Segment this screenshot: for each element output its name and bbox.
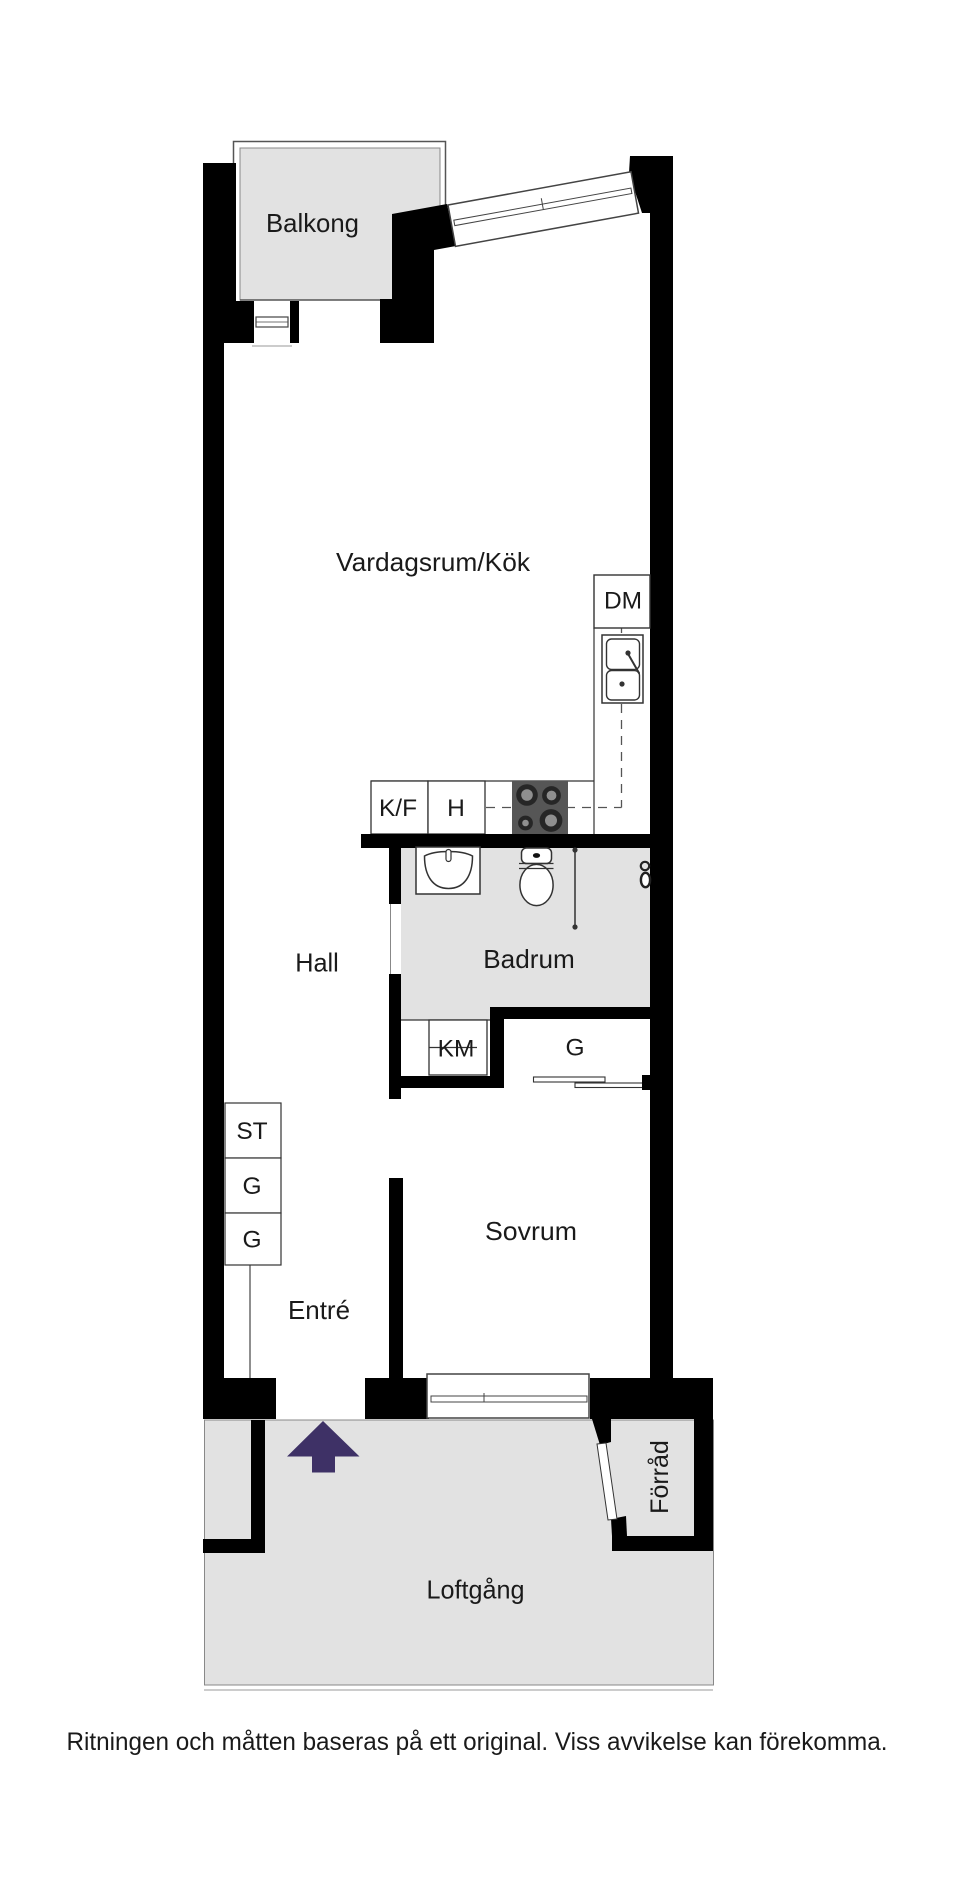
svg-text:KM: KM bbox=[438, 1036, 475, 1063]
svg-text:Vardagsrum/Kök: Vardagsrum/Kök bbox=[336, 547, 531, 577]
svg-text:Förråd: Förråd bbox=[646, 1440, 674, 1514]
svg-text:H: H bbox=[447, 795, 465, 822]
svg-text:Hall: Hall bbox=[295, 948, 339, 978]
svg-text:G: G bbox=[565, 1035, 584, 1062]
svg-text:K/F: K/F bbox=[379, 795, 417, 822]
svg-text:Badrum: Badrum bbox=[483, 944, 575, 974]
svg-text:Entré: Entré bbox=[288, 1295, 350, 1325]
svg-text:G: G bbox=[242, 1173, 261, 1200]
svg-text:DM: DM bbox=[604, 588, 642, 615]
svg-text:Balkong: Balkong bbox=[266, 208, 359, 238]
svg-text:G: G bbox=[242, 1227, 261, 1254]
svg-text:ST: ST bbox=[236, 1118, 267, 1145]
svg-text:Sovrum: Sovrum bbox=[485, 1216, 577, 1246]
svg-text:Loftgång: Loftgång bbox=[427, 1575, 525, 1605]
svg-text:Ritningen och måtten baseras p: Ritningen och måtten baseras på ett orig… bbox=[67, 1728, 888, 1756]
